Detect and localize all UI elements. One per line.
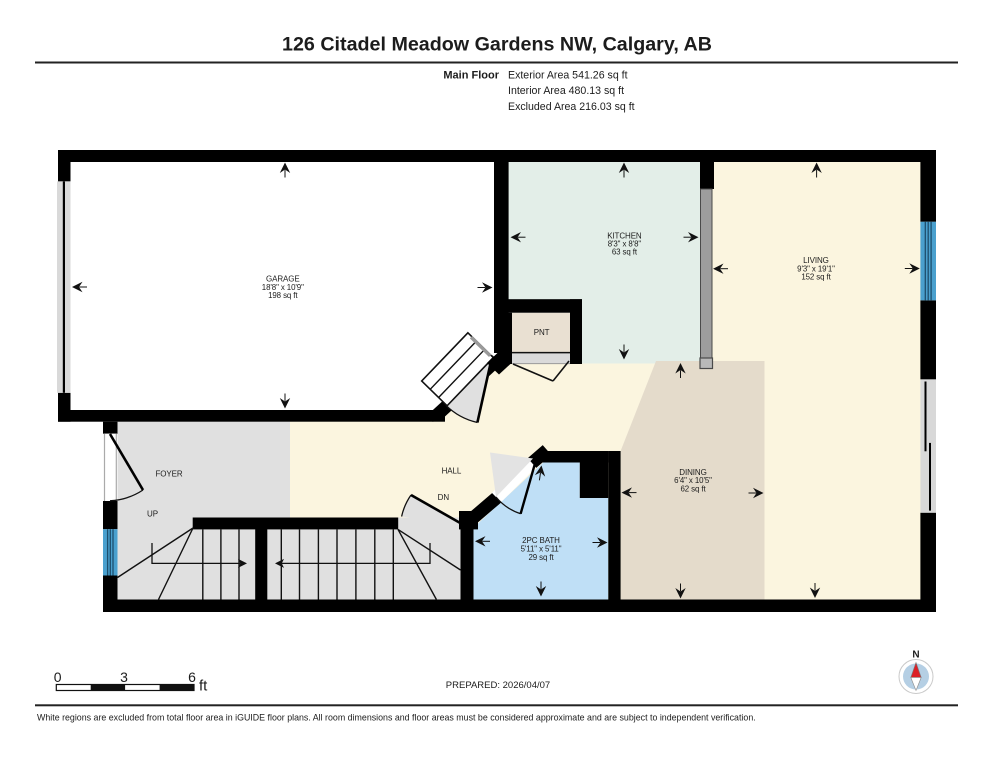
svg-text:N: N (912, 649, 919, 660)
svg-text:126 Citadel Meadow Gardens NW,: 126 Citadel Meadow Gardens NW, Calgary, … (282, 34, 712, 56)
svg-text:FOYER: FOYER (155, 469, 182, 478)
svg-text:63 sq ft: 63 sq ft (612, 248, 638, 257)
svg-text:0: 0 (54, 669, 62, 685)
svg-text:Exterior Area 541.26 sq ft: Exterior Area 541.26 sq ft (508, 70, 628, 82)
svg-text:Excluded Area 216.03 sq ft: Excluded Area 216.03 sq ft (508, 101, 635, 113)
svg-text:Main Floor: Main Floor (443, 70, 499, 82)
svg-text:UP: UP (147, 510, 158, 519)
svg-text:ft: ft (199, 677, 208, 694)
svg-text:198 sq ft: 198 sq ft (268, 291, 298, 300)
svg-text:3: 3 (120, 669, 128, 685)
svg-text:PREPARED: 2026/04/07: PREPARED: 2026/04/07 (446, 680, 550, 691)
svg-text:White regions are excluded fro: White regions are excluded from total fl… (37, 713, 756, 723)
svg-text:DN: DN (438, 493, 450, 502)
svg-text:HALL: HALL (442, 467, 462, 476)
svg-text:6: 6 (188, 669, 196, 685)
svg-text:29 sq ft: 29 sq ft (528, 553, 554, 562)
svg-text:PNT: PNT (534, 328, 550, 337)
svg-text:Interior Area 480.13 sq ft: Interior Area 480.13 sq ft (508, 85, 624, 97)
svg-text:62 sq ft: 62 sq ft (680, 485, 706, 494)
svg-text:152 sq ft: 152 sq ft (801, 273, 831, 282)
